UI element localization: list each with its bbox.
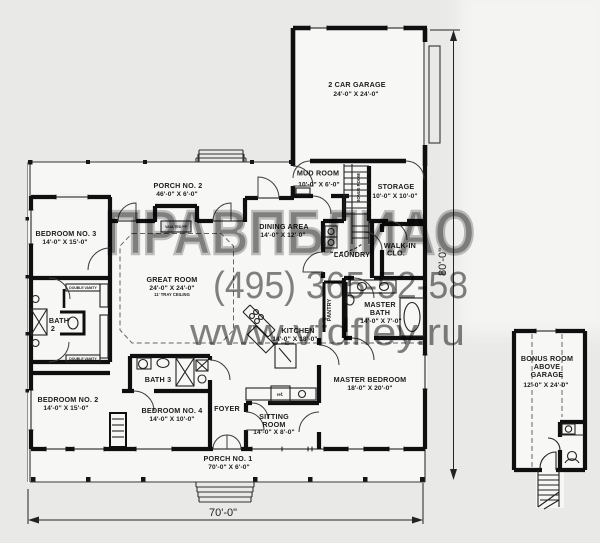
svg-text:(495) 365-52-58: (495) 365-52-58 [213,265,468,307]
svg-text:ROOM: ROOM [262,420,285,429]
svg-text:DOUBLE VANITY: DOUBLE VANITY [69,286,97,290]
svg-text:2: 2 [51,324,55,333]
svg-text:14'-0" X 10'-0": 14'-0" X 10'-0" [149,416,194,423]
svg-text:14'-0" X 15'-0": 14'-0" X 15'-0" [42,239,87,246]
svg-text:BEDROOM NO. 2: BEDROOM NO. 2 [38,395,99,404]
svg-text:FOYER: FOYER [214,404,240,413]
svg-text:BEDROOM NO. 4: BEDROOM NO. 4 [142,406,203,415]
svg-text:14'-0" X 15'-0": 14'-0" X 15'-0" [43,405,88,412]
svg-text:11' TRAY CEILING: 11' TRAY CEILING [154,292,190,297]
svg-text:BATH 3: BATH 3 [145,375,172,384]
svg-text:GARAGE: GARAGE [531,370,564,379]
svg-text:10'-0" X 6'-0": 10'-0" X 6'-0" [298,182,340,189]
svg-text:ПРАВПБЛИАО: ПРАВПБЛИАО [105,199,475,268]
svg-text:PORCH NO. 1: PORCH NO. 1 [204,454,253,463]
svg-text:14'-0" X 8'-0": 14'-0" X 8'-0" [253,429,295,436]
svg-text:70'-0" X 6'-0": 70'-0" X 6'-0" [208,464,250,471]
svg-text:2 CAR GARAGE: 2 CAR GARAGE [328,80,386,89]
svg-text:18'-0" X 20'-0": 18'-0" X 20'-0" [347,385,392,392]
svg-text:24'-0" X 24'-0": 24'-0" X 24'-0" [333,91,378,98]
svg-text:STORAGE: STORAGE [378,182,415,191]
svg-text:ref.: ref. [277,392,284,397]
svg-text:BEDROOM NO. 3: BEDROOM NO. 3 [36,229,97,238]
svg-text:www.vfdfley.ru: www.vfdfley.ru [189,312,465,354]
svg-text:24'-0" X 24'-0": 24'-0" X 24'-0" [149,285,194,292]
svg-text:PORCH NO. 2: PORCH NO. 2 [154,181,203,190]
svg-text:70'-0": 70'-0" [209,507,237,519]
svg-text:GREAT ROOM: GREAT ROOM [147,275,198,284]
svg-text:12'-0" X 24'-0": 12'-0" X 24'-0" [523,382,568,389]
svg-text:DOUBLE VANITY: DOUBLE VANITY [69,357,97,361]
svg-text:MUD ROOM: MUD ROOM [297,169,339,178]
svg-text:46'-0" X 6'-0": 46'-0" X 6'-0" [156,191,198,198]
svg-text:MASTER BEDROOM: MASTER BEDROOM [334,375,407,384]
